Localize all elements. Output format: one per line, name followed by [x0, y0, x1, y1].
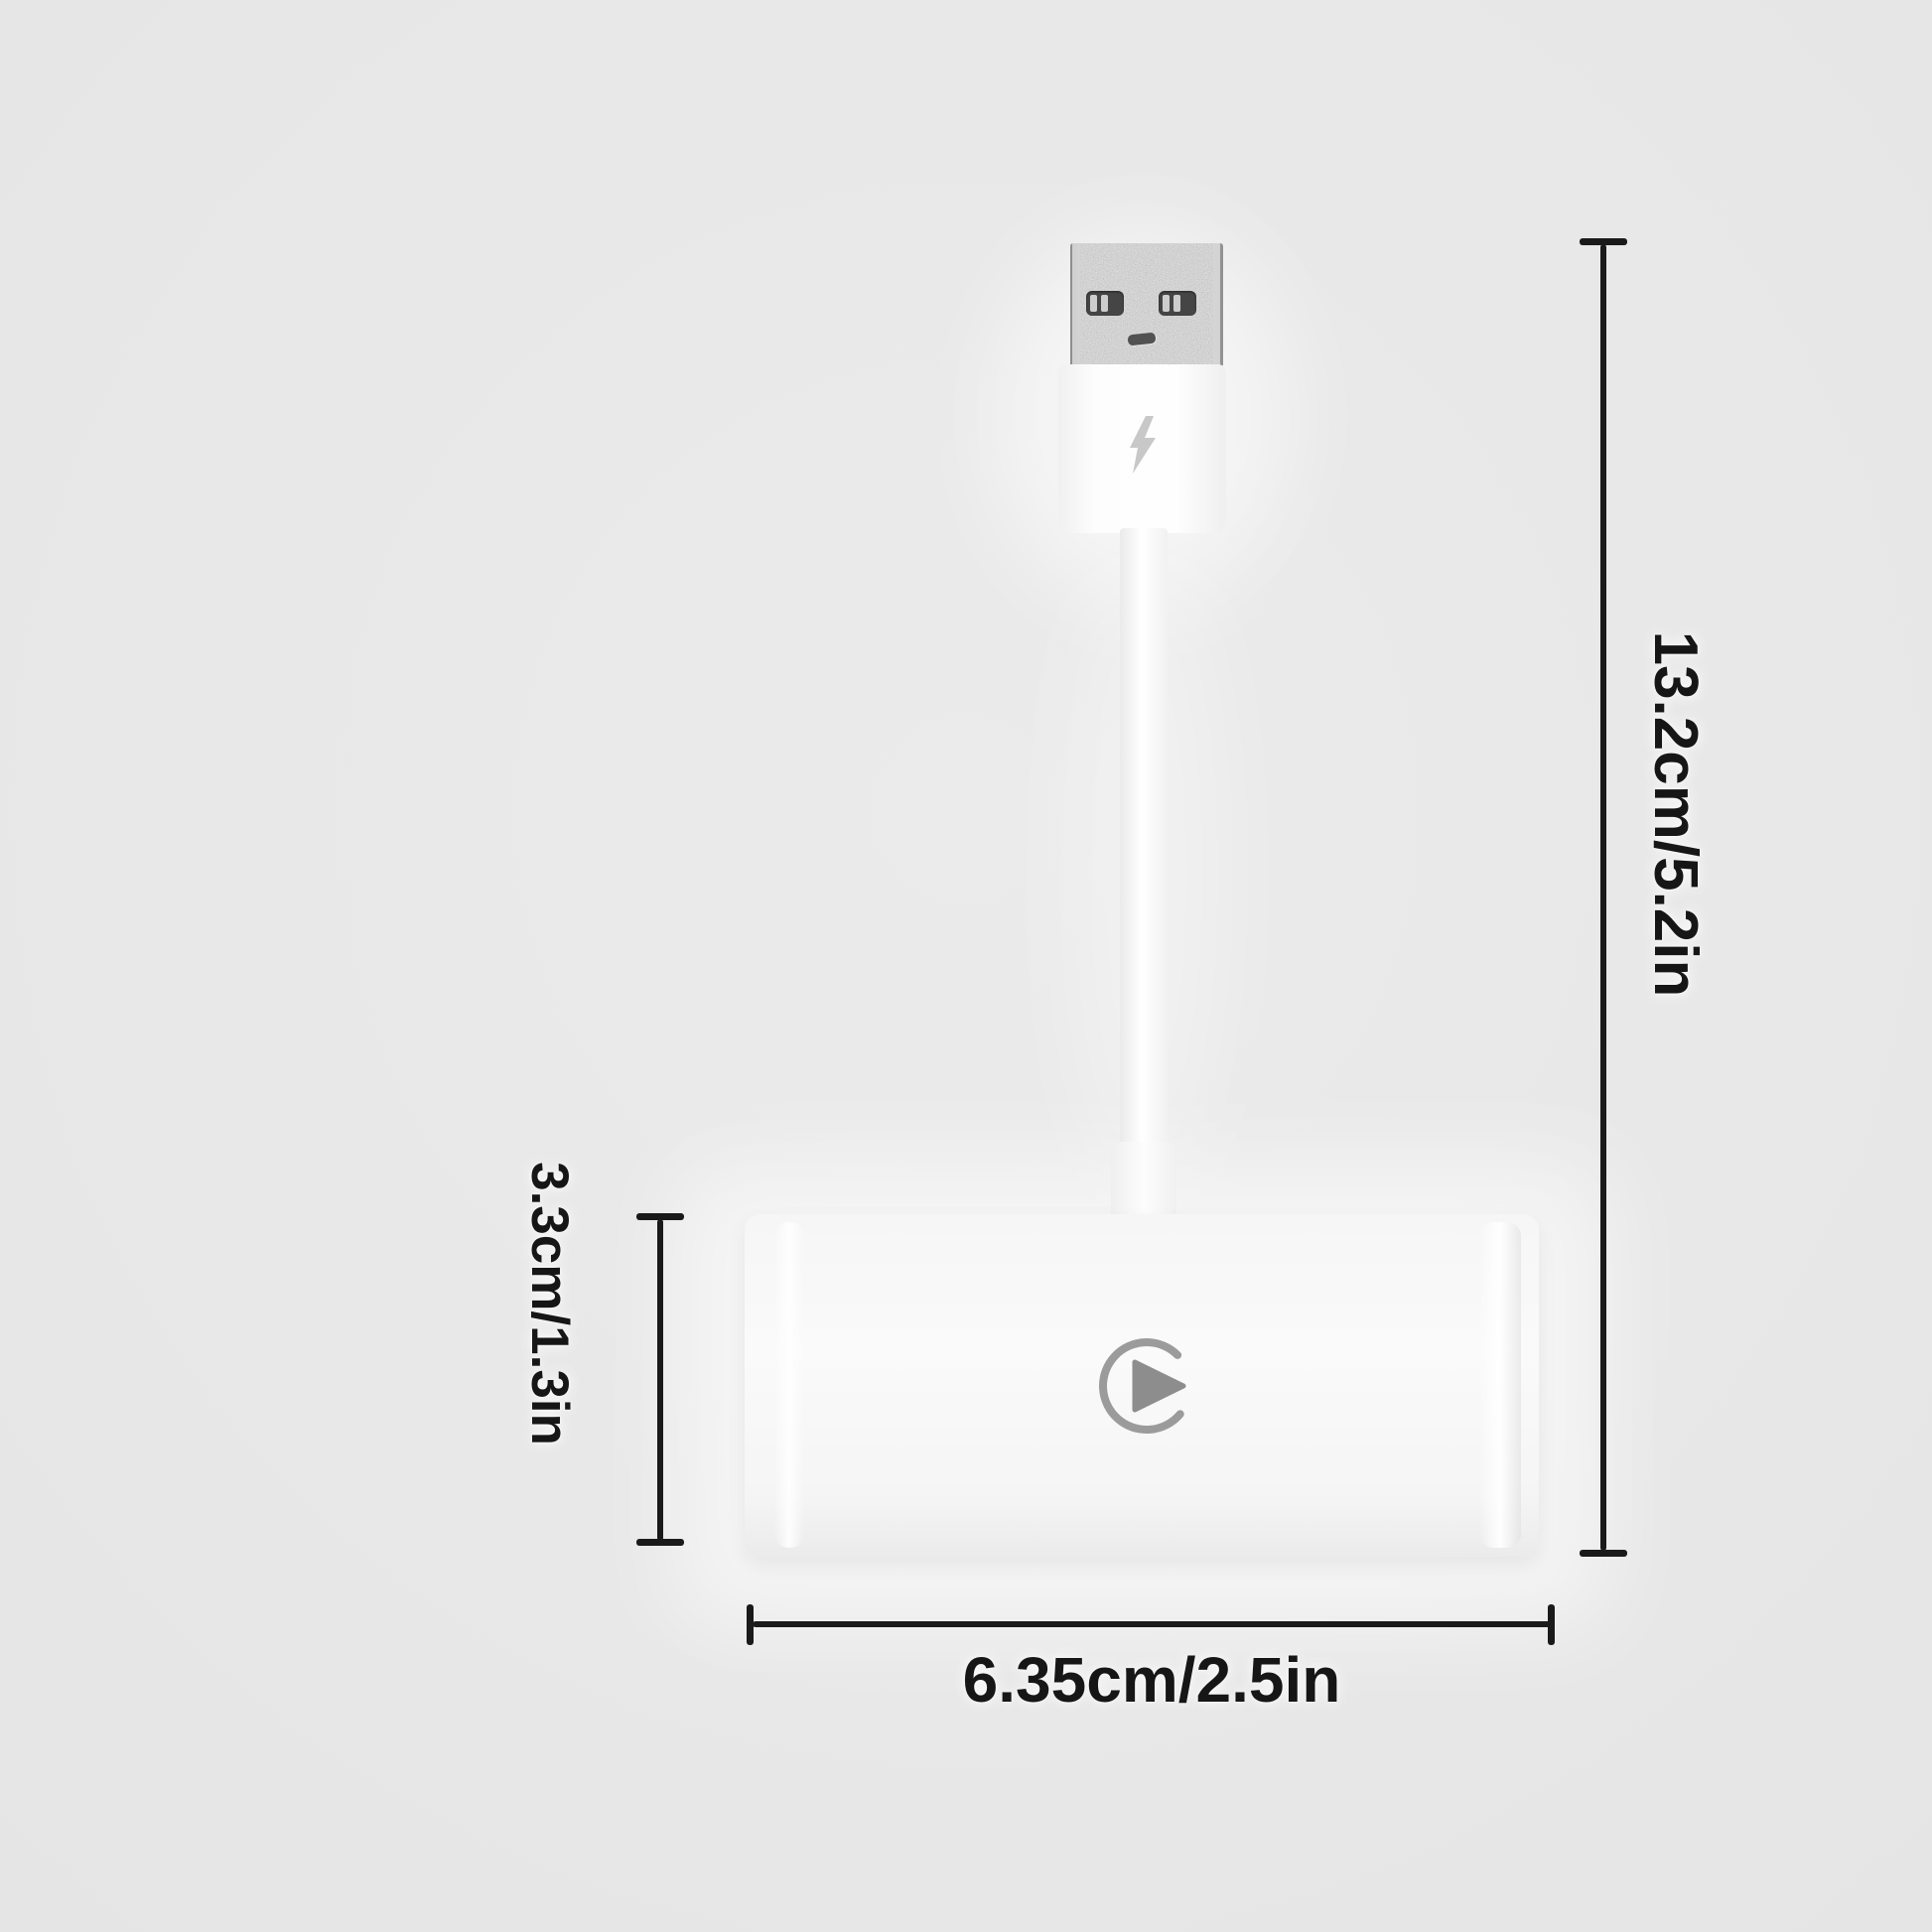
dimension-end-cap — [636, 1539, 684, 1546]
dimension-end-cap — [1580, 238, 1627, 245]
adapter-box — [745, 1214, 1539, 1557]
usb-connector-metal — [1070, 243, 1223, 365]
usb-pin — [1101, 295, 1108, 312]
usb-pin — [1090, 295, 1097, 312]
dimension-end-cap — [1548, 1604, 1555, 1645]
dimension-end-cap — [636, 1213, 684, 1220]
usb-pin — [1173, 295, 1180, 312]
dimension-end-cap — [1580, 1550, 1627, 1557]
box-height-label: 3.3cm/1.3in — [518, 1145, 580, 1462]
total-height-label: 13.2cm/5.2in — [1640, 596, 1710, 1033]
usb-contact-slot — [1086, 291, 1124, 316]
product-dimension-diagram: 13.2cm/5.2in 3.3cm/1.3in 6.35cm/2.5in — [0, 0, 1932, 1932]
dimension-line-vertical — [657, 1219, 663, 1541]
usb-pin — [1163, 295, 1170, 312]
usb-plug-body — [1058, 364, 1226, 533]
box-width-label: 6.35cm/2.5in — [894, 1638, 1410, 1722]
usb-contact-slot — [1159, 291, 1196, 316]
cable-strain-relief — [1111, 1142, 1176, 1223]
dimension-end-cap — [747, 1604, 754, 1645]
dimension-line-vertical — [1600, 244, 1606, 1551]
dimension-line-horizontal — [753, 1621, 1552, 1627]
lightning-bolt-icon — [1125, 416, 1159, 474]
usb-cable — [1120, 528, 1168, 1154]
play-icon — [1092, 1331, 1201, 1441]
